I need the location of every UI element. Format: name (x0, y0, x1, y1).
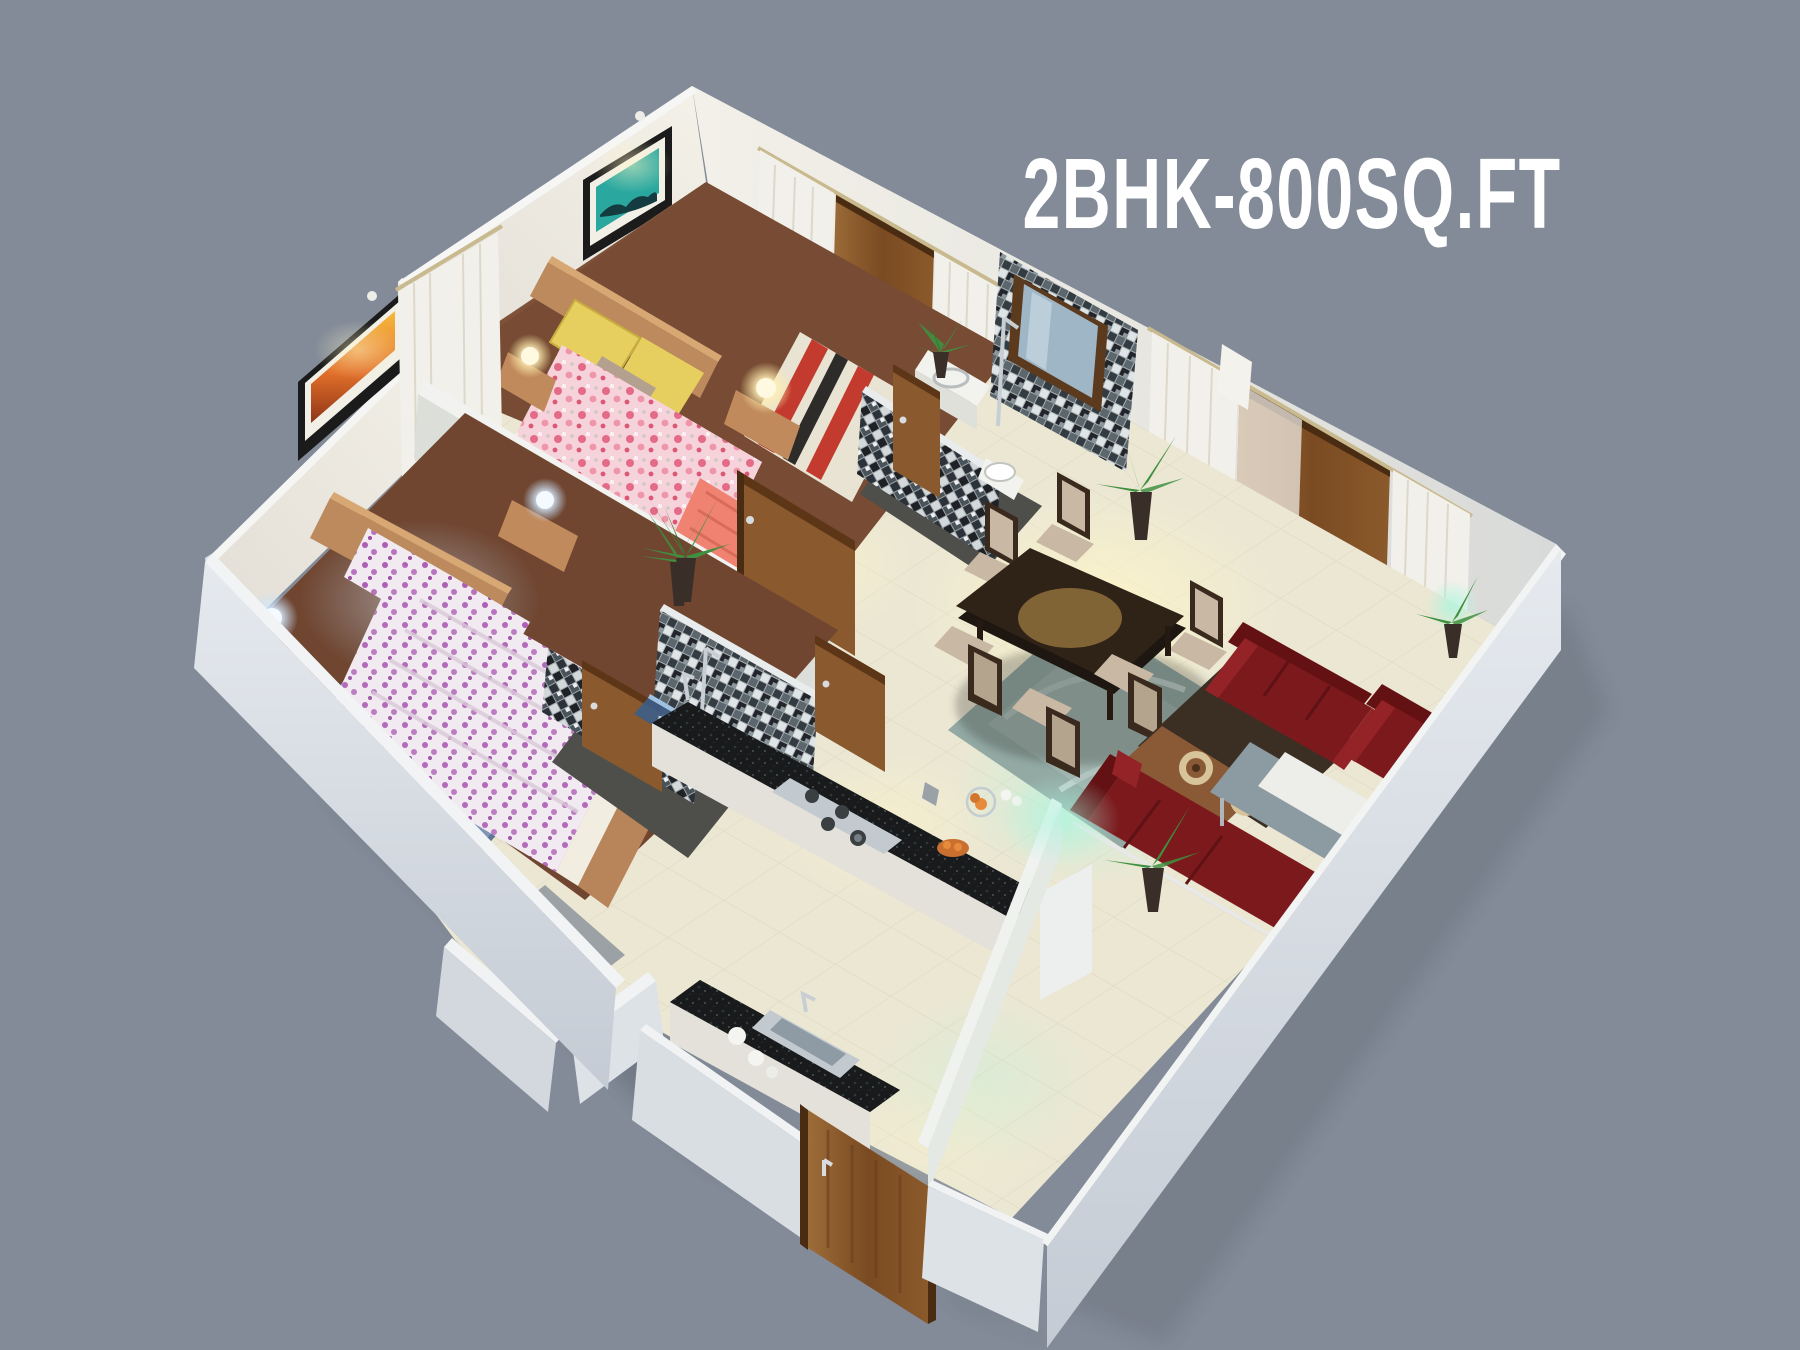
title: 2BHK-800SQ.FT (1022, 139, 1561, 250)
title-text: 2BHK-800SQ.FT (1022, 139, 1561, 250)
floor-plan-render: 2BHK-800SQ.FT (0, 0, 1800, 1350)
